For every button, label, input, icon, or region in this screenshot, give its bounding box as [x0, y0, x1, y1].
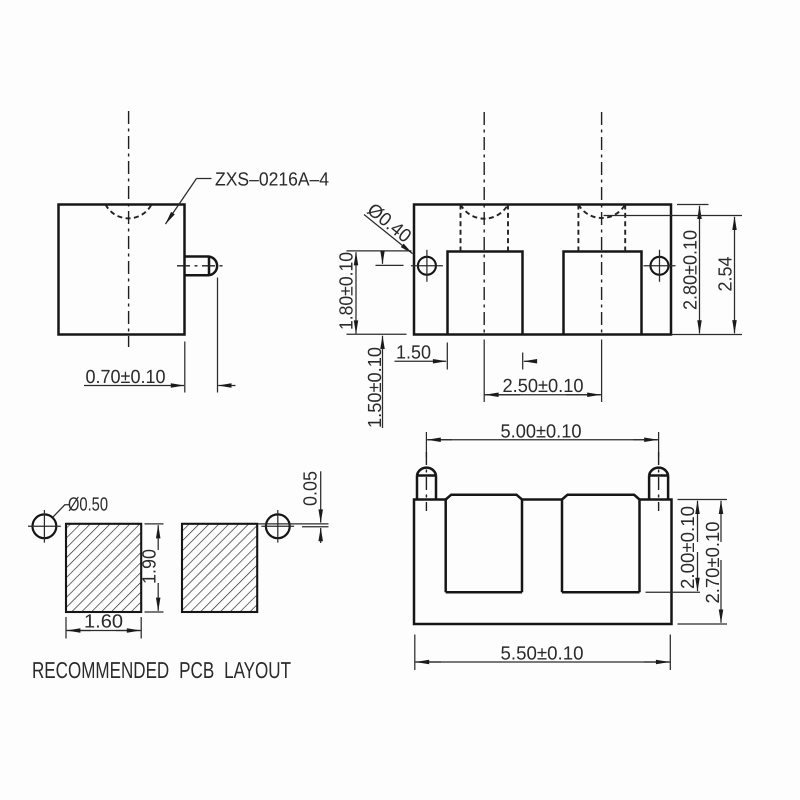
- svg-text:1.60: 1.60: [84, 612, 123, 633]
- svg-text:1.50±0.10: 1.50±0.10: [365, 347, 386, 428]
- svg-text:1.50: 1.50: [396, 343, 431, 364]
- svg-text:2.00±0.10: 2.00±0.10: [678, 506, 699, 589]
- svg-text:RECOMMENDED PCB LAYOUT: RECOMMENDED PCB LAYOUT: [32, 657, 291, 683]
- svg-text:2.80±0.10: 2.80±0.10: [681, 230, 702, 310]
- svg-text:Ø0.50: Ø0.50: [68, 495, 108, 516]
- svg-text:0.70±0.10: 0.70±0.10: [86, 367, 166, 388]
- svg-text:ZXS–0216A–4: ZXS–0216A–4: [215, 170, 329, 191]
- svg-text:1.90: 1.90: [140, 549, 161, 584]
- svg-text:5.00±0.10: 5.00±0.10: [501, 421, 582, 442]
- svg-text:2.50±0.10: 2.50±0.10: [503, 376, 584, 397]
- svg-text:0.05: 0.05: [301, 471, 322, 506]
- svg-text:5.50±0.10: 5.50±0.10: [501, 643, 584, 664]
- svg-text:2.70±0.10: 2.70±0.10: [703, 522, 724, 604]
- svg-text:2.54: 2.54: [716, 256, 737, 291]
- svg-text:1.80±0.10: 1.80±0.10: [337, 252, 358, 330]
